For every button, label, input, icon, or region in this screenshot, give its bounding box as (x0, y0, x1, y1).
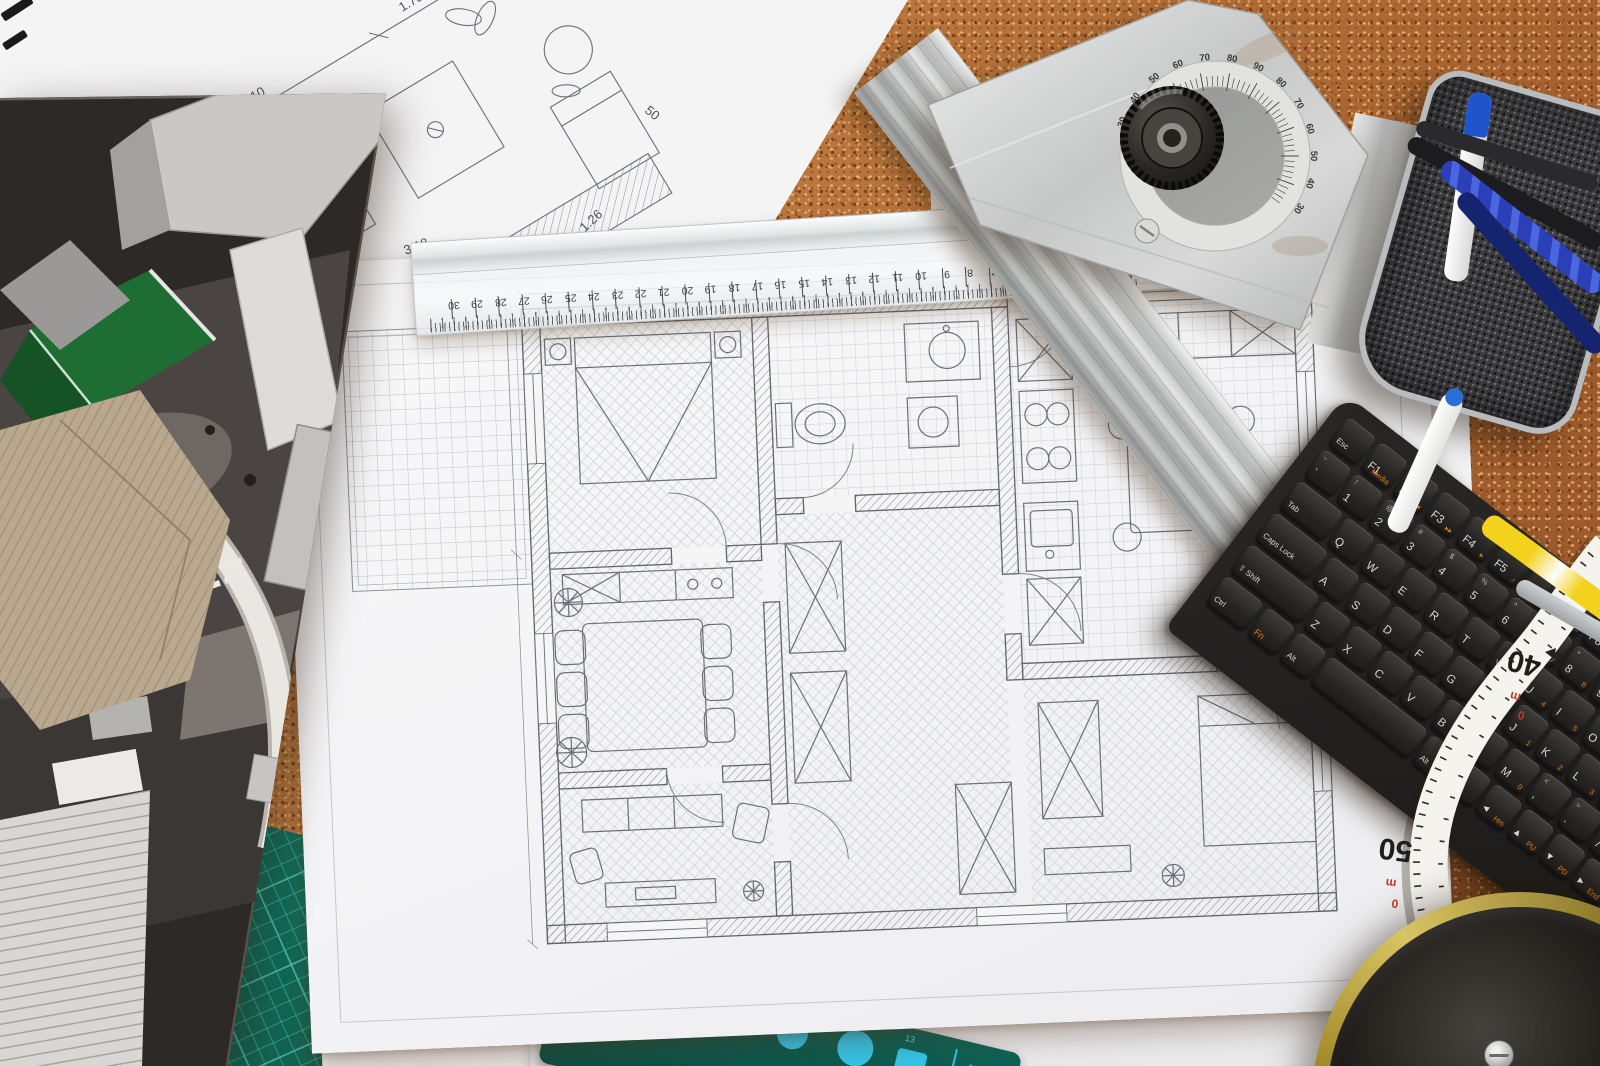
template-number: 13 (904, 1033, 916, 1045)
ruler-cm-mark: 24 (569, 290, 594, 311)
ruler-cm-mark: 14 (802, 276, 827, 297)
ruler-cm-mark: 18 (709, 281, 734, 302)
ruler-cm-mark: 11 (873, 271, 898, 292)
ruler-cm-mark: 20 (662, 284, 687, 305)
protractor-degree-label: 70 (1199, 52, 1211, 64)
ruler-cm-mark: 17 (732, 280, 757, 301)
protractor-degree-label: 80 (1226, 53, 1238, 66)
ruler-cm-mark: 23 (592, 289, 617, 310)
ruler-cm-mark: 16 (756, 279, 781, 300)
pen-basket (1386, 88, 1600, 418)
ruler-cm-mark: 30 (429, 299, 454, 320)
template-square (892, 1047, 928, 1066)
ruler-cm-mark: 12 (849, 273, 874, 294)
ruler-cm-mark: 15 (779, 277, 804, 298)
tape-reel-screw (1484, 1040, 1514, 1066)
model-building-silver (150, 40, 420, 240)
ruler-cm-mark: 22 (616, 287, 641, 308)
ruler-cm-mark: 19 (686, 283, 711, 304)
ruler-cm-mark: 27 (499, 295, 524, 316)
ruler-cm-mark: 21 (639, 286, 664, 307)
ruler-cm-mark: 28 (476, 296, 501, 317)
portfolio-model-board (0, 0, 430, 1066)
template-number: 26 (967, 1062, 979, 1066)
template-line (935, 1049, 957, 1066)
protractor-head: 30405060708090807060504030 (900, 0, 1420, 368)
protractor-degree-label: 50 (1308, 151, 1319, 162)
ruler-cm-mark: 13 (826, 274, 851, 295)
ruler-cm-mark: 29 (452, 298, 477, 319)
ruler-cm-mark: 26 (522, 293, 547, 314)
architect-workspace-photo: 2.10 1.75 1.77 3.18 1.26 50 25 40 98 (0, 0, 1600, 1066)
ruler-cm-mark: 25 (546, 292, 571, 313)
template-circle (834, 1027, 877, 1066)
